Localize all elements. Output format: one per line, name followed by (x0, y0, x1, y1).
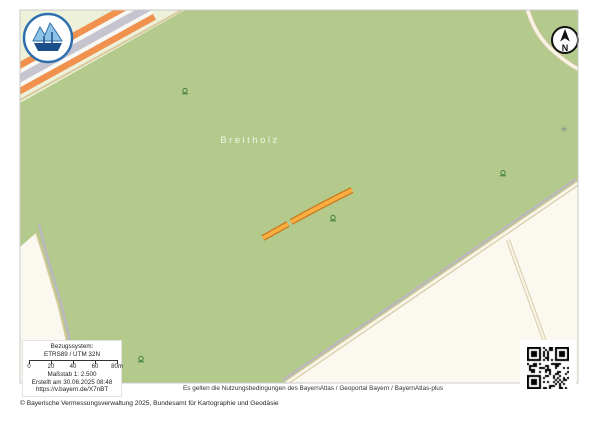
created-label: Erstellt am 30.06.2025 08:48 (23, 379, 121, 387)
terms-text: Es gelten die Nutzungsbedingungen des Ba… (183, 385, 443, 392)
ref-system-label: Bezugssystem: (23, 343, 121, 351)
scale-bar: 020406080m (26, 359, 118, 371)
place-label: Breitholz (220, 135, 279, 146)
qr-code-box (520, 340, 576, 396)
map-badge-icon (24, 14, 72, 62)
scale-label: Maßstab 1: 2.500 (23, 371, 121, 379)
scale-bar-tick-label: 20 (48, 364, 55, 372)
scale-bar-tick-label: 80m (111, 364, 123, 372)
scale-bar-tick-label: 60 (92, 364, 99, 372)
ref-system-value: ETRS89 / UTM 32N (23, 351, 121, 359)
copyright-text: © Bayerische Vermessungsverwaltung 2025,… (20, 400, 279, 407)
qr-code (527, 347, 569, 389)
north-label: N (562, 43, 569, 53)
north-arrow: N (552, 27, 578, 53)
map-export-page: Breitholz N Bezugssystem: ETRS89 / UTM 3… (0, 0, 600, 424)
map-info-box: Bezugssystem: ETRS89 / UTM 32N 020406080… (22, 340, 122, 397)
scale-bar-tick-label: 40 (70, 364, 77, 372)
map-layers: Breitholz (0, 0, 580, 383)
scale-bar-tick-label: 0 (27, 364, 30, 372)
short-url: https://v.bayern.de/X7nBT (23, 386, 121, 394)
